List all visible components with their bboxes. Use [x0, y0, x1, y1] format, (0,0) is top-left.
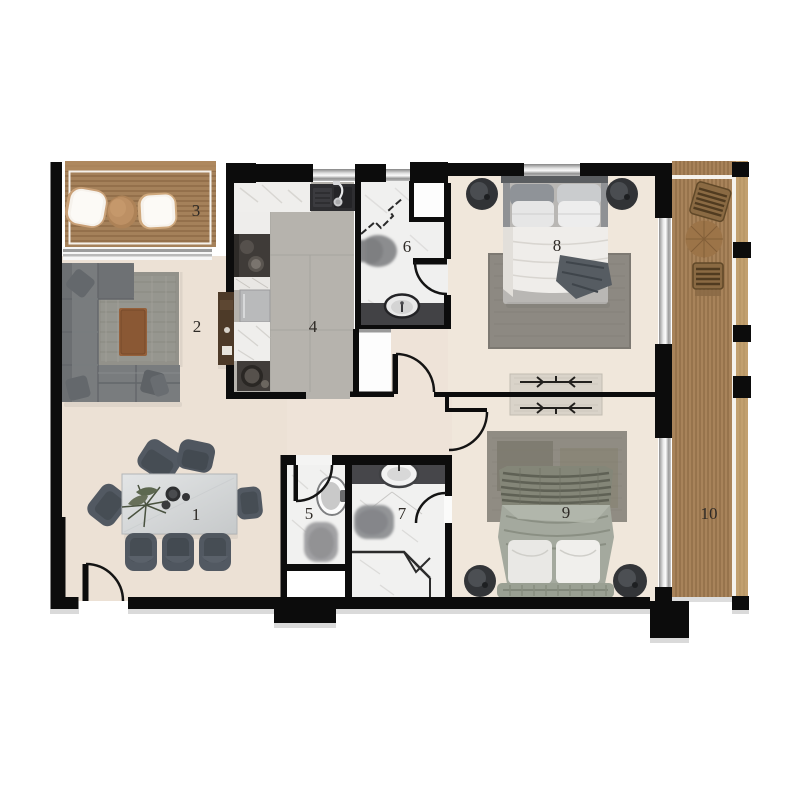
svg-text:4: 4 — [309, 317, 318, 336]
svg-text:7: 7 — [398, 504, 407, 523]
svg-text:1: 1 — [192, 505, 201, 524]
svg-text:3: 3 — [192, 201, 201, 220]
svg-text:6: 6 — [403, 237, 412, 256]
svg-text:5: 5 — [305, 504, 314, 523]
svg-text:2: 2 — [193, 317, 202, 336]
svg-text:9: 9 — [562, 503, 571, 522]
svg-text:8: 8 — [553, 236, 562, 255]
svg-text:10: 10 — [701, 504, 718, 523]
